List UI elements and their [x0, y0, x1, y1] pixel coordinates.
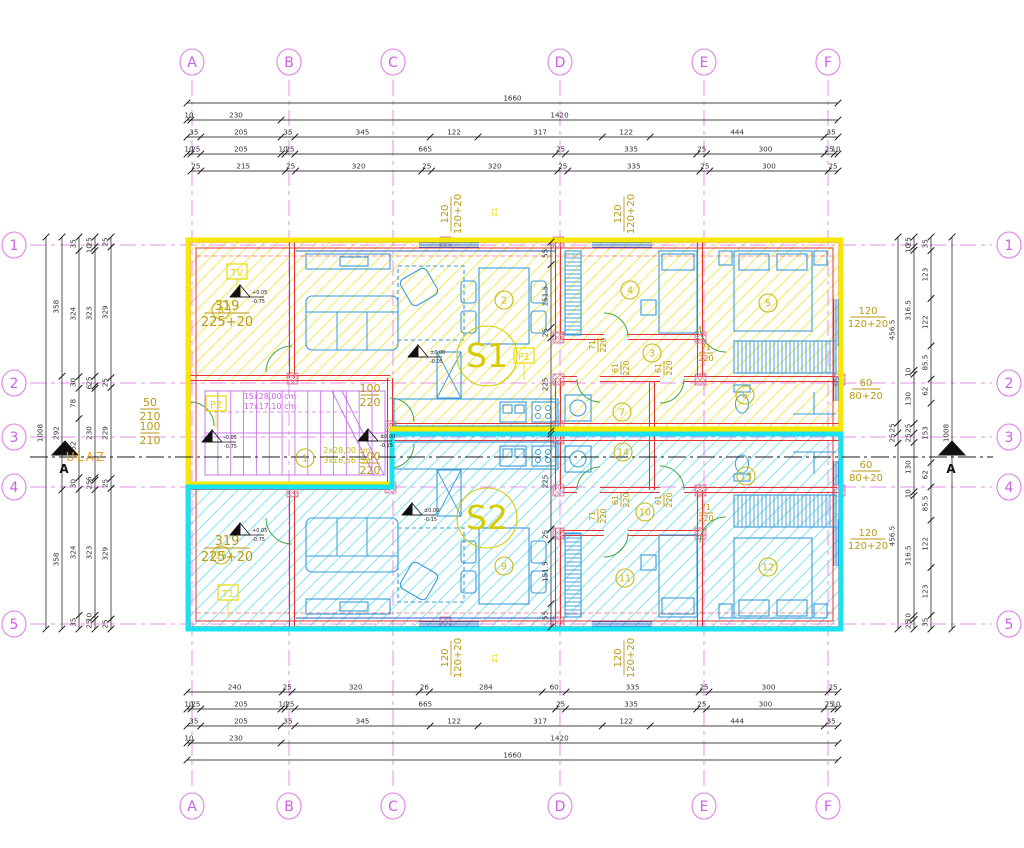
fraction-top: 71: [588, 340, 597, 350]
text-annotation: 3x16,56 cm: [323, 456, 371, 465]
floorplan-drawing: AABBCCDDEEFF1122334455 16601023014203520…: [0, 0, 1024, 848]
fraction-bottom: 220: [599, 337, 608, 352]
dim-label: 25: [699, 683, 708, 692]
dim-label: 300: [762, 683, 776, 692]
dim-fraction: 100210: [140, 420, 161, 447]
dim-label: 1660: [503, 94, 522, 103]
dim-label: 25: [888, 423, 897, 432]
axis-label-F-bottom: F: [824, 799, 832, 815]
dim-label: 316.5: [904, 545, 913, 566]
level-value: -0.15: [380, 443, 393, 449]
dim-label: 25: [541, 530, 550, 539]
text-annotation: ULAZ: [66, 450, 106, 464]
axis-label-A-bottom: A: [187, 799, 197, 815]
wall-pier: [553, 374, 564, 385]
dim-label: 153: [921, 426, 930, 440]
fraction-bottom: 120+20: [453, 638, 464, 678]
level-value: +0.05: [252, 290, 267, 296]
axis-label-3-right: 3: [1005, 430, 1014, 446]
text-annotation: Z1: [491, 207, 499, 216]
dim-label: 25: [888, 434, 897, 443]
dim-label: 85.5: [921, 355, 930, 371]
dim-label: 35: [189, 717, 198, 726]
fraction-bottom: 80+20: [849, 391, 883, 402]
fraction-bottom: 220: [622, 492, 631, 507]
fraction-bottom: 225+20: [201, 315, 253, 330]
unit-label-S1: S1: [466, 336, 508, 375]
axis-label-2-right: 2: [1005, 376, 1014, 392]
dim-fraction: 120120+20: [613, 638, 637, 678]
axis-label-F-top: F: [824, 55, 832, 71]
dim-label: 215: [236, 162, 250, 171]
fraction-bottom: 120+20: [848, 319, 888, 330]
fraction-top: 61: [654, 495, 663, 505]
fraction-top: 120: [858, 528, 877, 539]
axis-label-E-top: E: [700, 55, 709, 71]
dim-label: 205: [234, 145, 248, 154]
dim-label: 444: [730, 128, 744, 137]
dim-label: 345: [356, 128, 370, 137]
dim-label: 25: [904, 620, 913, 629]
text-annotation: 2x28,00 cm: [323, 446, 371, 455]
dim-label: 230: [229, 734, 243, 743]
fraction-top: 61: [611, 363, 620, 373]
dim-label: 1420: [550, 734, 569, 743]
dim-label: 25: [541, 328, 550, 337]
dim-label: 225: [541, 475, 550, 489]
dim-label: 25: [558, 162, 567, 171]
axis-label-D-bottom: D: [555, 799, 566, 815]
dim-label: 345: [356, 717, 370, 726]
axis-label-B-bottom: B: [284, 799, 294, 815]
dim-fraction: 120120+20: [848, 306, 888, 330]
dim-fraction: 100220: [360, 382, 381, 409]
dim-label: 35: [283, 128, 292, 137]
dim-label: 25: [700, 162, 709, 171]
fraction-bottom: 120+20: [848, 541, 888, 552]
dim-label: 240: [228, 683, 242, 692]
dim-label: 335: [624, 700, 638, 709]
fraction-bottom: 220: [360, 396, 381, 409]
level-value: ±0.00: [380, 434, 395, 440]
dim-label: 62: [921, 470, 930, 479]
dim-fraction: 120120+20: [613, 194, 637, 234]
unit-label-S2: S2: [466, 498, 508, 537]
dim-fraction: 50210: [140, 396, 161, 423]
dim-label: 335: [627, 162, 641, 171]
text-annotation: Z1: [491, 653, 499, 662]
dim-label: 329: [101, 546, 110, 560]
wall-pier: [553, 617, 564, 628]
dim-label: 35: [69, 618, 78, 627]
axis-label-5-right: 5: [1005, 617, 1014, 633]
dim-label: 25: [85, 480, 94, 489]
dim-label: 25: [191, 700, 200, 709]
room-number-5: 5: [765, 298, 771, 309]
axis-label-D-top: D: [555, 55, 566, 71]
wardrobe: [734, 341, 836, 373]
dim-label: 456.5: [888, 526, 897, 547]
level-value: +0.05: [252, 528, 267, 534]
dim-label: 122: [447, 128, 461, 137]
level-value: ±0.00: [430, 350, 445, 356]
room-number-13: 13: [740, 471, 752, 482]
dim-label: 78: [69, 398, 78, 408]
dim-label: 25: [191, 162, 200, 171]
dim-label: 123: [921, 585, 930, 599]
dim-label: 205: [234, 700, 248, 709]
dim-label: 358: [52, 552, 61, 566]
dim-label: 225: [541, 378, 550, 392]
level-value: -0.15: [424, 517, 437, 523]
dim-label: 316.5: [904, 300, 913, 321]
dim-fraction: 120120+20: [440, 194, 464, 234]
fraction-top: 120: [440, 204, 451, 223]
axis-label-E-bottom: E: [700, 799, 709, 815]
fraction-bottom: 220: [665, 492, 674, 507]
dim-label: 122: [619, 717, 633, 726]
fraction-bottom: 225+20: [201, 550, 253, 565]
radiator: [565, 533, 581, 617]
dim-label: 151.5: [541, 561, 550, 582]
fraction-top: 319: [215, 534, 240, 549]
dim-fraction: 120120+20: [848, 528, 888, 552]
dim-label: 25: [904, 424, 913, 433]
level-value: -0.75: [252, 299, 265, 305]
dim-label: 151.5: [541, 286, 550, 307]
dim-label: 35: [69, 239, 78, 248]
dim-label: 25: [697, 700, 706, 709]
dim-label: 230: [85, 426, 94, 440]
axis-label-3-left: 3: [10, 430, 19, 446]
wall-pier: [553, 528, 564, 539]
tag-box-label: P2: [210, 400, 222, 411]
section-label: A: [946, 462, 956, 476]
fraction-bottom: 220: [698, 514, 713, 523]
dim-label: 300: [759, 700, 773, 709]
fraction-top: 120: [613, 648, 624, 667]
dim-label: 323: [85, 546, 94, 560]
wardrobe: [734, 495, 836, 527]
fraction-top: 60: [860, 460, 873, 471]
dim-label: 130: [904, 392, 913, 406]
dim-label: 317: [533, 128, 547, 137]
fraction-top: 50: [143, 396, 157, 409]
dim-label: 62: [921, 387, 930, 396]
dim-label: 25: [283, 683, 292, 692]
wall-pier: [695, 374, 706, 385]
room-number-3: 3: [649, 348, 655, 359]
dim-label: 10: [904, 367, 913, 377]
fraction-top: 71: [588, 511, 597, 521]
level-value: -0.05: [224, 435, 237, 441]
dim-label: 25: [85, 377, 94, 386]
dim-label: 317: [533, 717, 547, 726]
room-number-7: 7: [619, 407, 625, 418]
tag-box-label: TV: [230, 268, 244, 279]
dim-fraction: 120120+20: [440, 638, 464, 678]
wall-pier: [287, 373, 298, 384]
dim-label: 320: [352, 162, 366, 171]
dim-label: 60: [550, 683, 560, 692]
dim-label: 10: [904, 243, 913, 253]
dim-label: 665: [418, 700, 432, 709]
dim-label: 6: [85, 384, 94, 389]
dim-label: 10: [904, 489, 913, 499]
fraction-top: 120: [613, 204, 624, 223]
dim-label: 205: [234, 128, 248, 137]
dim-label: 122: [921, 537, 930, 551]
room-number-12: 12: [762, 562, 774, 573]
room-number-14: 14: [617, 447, 629, 458]
dim-label: 284: [479, 683, 493, 692]
dim-label: 25: [101, 619, 110, 628]
fraction-bottom: 120+20: [626, 194, 637, 234]
dim-label: 323: [85, 307, 94, 321]
wall-pier: [695, 332, 706, 343]
text-annotation: 17x17,10 cm: [244, 402, 297, 411]
dim-label: 1008: [36, 423, 45, 442]
fraction-top: 61: [611, 495, 620, 505]
dim-label: 35: [827, 717, 836, 726]
dim-label: 25: [828, 162, 837, 171]
dim-label: 55: [541, 249, 550, 258]
dim-label: 25: [85, 620, 94, 629]
dim-label: 25: [422, 162, 431, 171]
floorplan-page: AABBCCDDEEFF1122334455 16601023014203520…: [0, 0, 1024, 848]
fraction-bottom: 220: [360, 464, 381, 477]
fraction-top: 120: [858, 306, 877, 317]
radiator: [565, 251, 581, 335]
text-annotation: 15x28,00 cm: [244, 392, 297, 401]
fraction-bottom: 220: [599, 508, 608, 523]
fraction-bottom: 80+20: [849, 473, 883, 484]
dim-label: 324: [69, 545, 78, 559]
dim-label: 35: [827, 128, 836, 137]
dim-label: 1420: [550, 111, 569, 120]
dim-label: 229: [101, 426, 110, 440]
dim-label: 130: [904, 460, 913, 474]
fraction-top: 100: [360, 382, 381, 395]
dim-label: 25: [904, 433, 913, 442]
level-mark: [212, 430, 222, 442]
section-label: A: [59, 462, 69, 476]
axis-label-1-right: 1: [1005, 238, 1014, 254]
dim-label: 25: [101, 479, 110, 488]
dim-label: 30: [69, 479, 78, 489]
tag-box-label: T1: [221, 589, 234, 600]
room-number-2: 2: [501, 295, 507, 306]
dim-label: 25: [828, 683, 837, 692]
level-value: -0.05: [430, 359, 443, 365]
dim-label: 358: [52, 299, 61, 313]
dim-label: 122: [447, 717, 461, 726]
dim-label: 335: [624, 145, 638, 154]
room-number-10: 10: [639, 507, 651, 518]
axis-label-A-top: A: [187, 55, 197, 71]
dim-label: 292: [52, 426, 61, 440]
fraction-bottom: 220: [622, 360, 631, 375]
unit-s2-hatch: [190, 436, 839, 627]
axis-label-C-top: C: [388, 55, 398, 71]
fraction-top: 71: [701, 343, 711, 352]
fraction-top: 60: [860, 378, 873, 389]
dim-label: 35: [283, 717, 292, 726]
dim-label: 335: [626, 683, 640, 692]
dim-label: 85.5: [921, 495, 930, 511]
dim-label: 122: [619, 128, 633, 137]
fraction-bottom: 120+20: [453, 194, 464, 234]
dim-label: 444: [730, 717, 744, 726]
dim-label: 10: [85, 244, 94, 254]
dim-label: 300: [762, 162, 776, 171]
dim-label: 205: [234, 717, 248, 726]
axis-label-C-bottom: C: [388, 799, 398, 815]
dim-label: 55: [541, 611, 550, 620]
dim-label: 324: [69, 306, 78, 320]
dim-label: 25: [286, 162, 295, 171]
dim-label: 25: [556, 700, 565, 709]
dim-label: 300: [759, 145, 773, 154]
wall-pier: [553, 485, 564, 496]
dim-label: 25: [285, 145, 294, 154]
axis-label-4-left: 4: [10, 480, 19, 496]
dim-label: 35: [189, 128, 198, 137]
dim-label: 320: [488, 162, 502, 171]
fraction-bottom: 120+20: [626, 638, 637, 678]
dim-fraction: 6080+20: [849, 460, 883, 484]
dim-label: 1008: [942, 423, 951, 442]
axis-label-5-left: 5: [10, 617, 19, 633]
dim-label: 665: [418, 145, 432, 154]
dim-label: 456.5: [888, 320, 897, 341]
level-mark: [368, 429, 378, 441]
fraction-top: 120: [440, 648, 451, 667]
dim-label: 25: [191, 145, 200, 154]
fraction-top: 61: [654, 363, 663, 373]
dim-label: 25: [556, 145, 565, 154]
dim-label: 26: [420, 683, 430, 692]
dim-label: 230: [229, 111, 243, 120]
level-value: ±0.00: [424, 508, 439, 514]
level-mark: [202, 430, 212, 442]
axis-label-4-right: 4: [1005, 480, 1014, 496]
room-number-11: 11: [619, 573, 631, 584]
fraction-bottom: 220: [698, 354, 713, 363]
dim-label: 329: [101, 305, 110, 319]
axis-label-B-top: B: [284, 55, 294, 71]
dim-label: 35: [921, 239, 930, 248]
axis-label-1-left: 1: [10, 238, 19, 254]
dim-label: 320: [349, 683, 363, 692]
dim-label: 25: [285, 700, 294, 709]
dim-fraction: 6080+20: [849, 378, 883, 402]
fraction-top: 319: [215, 299, 240, 314]
dim-label: 123: [921, 268, 930, 282]
wall-pier: [695, 485, 706, 496]
fraction-bottom: 210: [140, 434, 161, 447]
dim-label: 25: [101, 378, 110, 387]
dim-label: 25: [697, 145, 706, 154]
wall-pier: [553, 332, 564, 343]
level-value: -0.75: [252, 537, 265, 543]
dim-label: 35: [921, 618, 930, 627]
dim-label: 122: [921, 315, 930, 329]
dim-label: 30: [69, 377, 78, 387]
axis-label-2-left: 2: [10, 376, 19, 392]
room-number-9: 9: [501, 561, 507, 572]
fraction-top: 100: [140, 420, 161, 433]
fraction-bottom: 220: [665, 360, 674, 375]
dim-label: 25: [101, 237, 110, 246]
room-number-6: 6: [742, 390, 748, 401]
fraction-top: 71: [701, 503, 711, 512]
tag-box-label: P1: [518, 352, 530, 363]
level-value: -0.75: [224, 444, 237, 450]
room-number-1: 1: [302, 453, 308, 464]
dim-label: 1660: [503, 751, 522, 760]
room-number-4: 4: [627, 285, 633, 296]
